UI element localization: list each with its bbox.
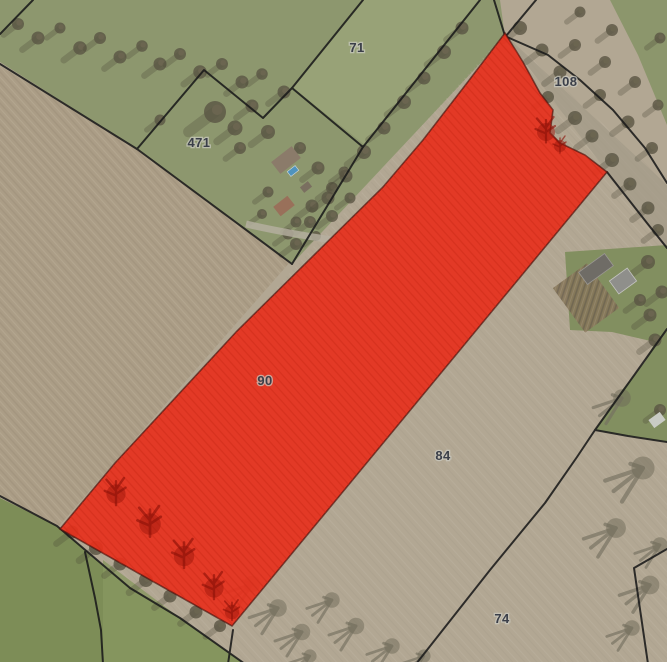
parcel-label-108: 108 — [555, 74, 578, 89]
parcel-label-90: 90 — [257, 373, 272, 388]
map-canvas[interactable]: 71 108 471 90 84 74 — [0, 0, 667, 662]
aerial-map: 71 108 471 90 84 74 — [0, 0, 667, 662]
parcel-label-84: 84 — [435, 448, 451, 463]
parcel-label-74: 74 — [494, 611, 510, 626]
parcel-label-471: 471 — [188, 135, 211, 150]
parcel-label-71: 71 — [349, 40, 364, 55]
